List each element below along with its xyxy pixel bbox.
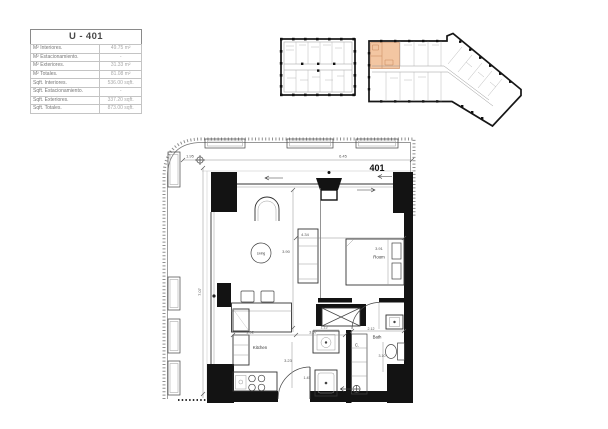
kitchen-sink [236, 376, 247, 390]
table-row: M² Totales.81.08 m² [31, 70, 142, 79]
living-label: Living [257, 252, 266, 256]
row-value: 337.20 sqft. [100, 96, 142, 105]
wall-segment [217, 283, 231, 307]
closet-label: C. [355, 343, 359, 348]
dim-top-overall: 6.45 [339, 154, 348, 159]
column [211, 172, 237, 212]
key-plan-tower-b [368, 34, 521, 127]
row-label: M² Estacionamiento. [31, 53, 100, 62]
dim-shower-width: 1.45 [304, 376, 311, 380]
armchair [255, 197, 279, 221]
stove [249, 375, 265, 391]
row-label: M² Totales. [31, 70, 100, 79]
dim-bath-width: 2.12 [368, 327, 375, 331]
bath-sink [386, 315, 403, 329]
row-value: 49.75 m² [100, 45, 142, 54]
row-label: Sqft. Totales. [31, 105, 100, 114]
plan-sheet: U - 401 M² Interiores.49.75 m² M² Estaci… [0, 0, 608, 429]
table-row: Sqft. Interiores.536.00 sqft. [31, 79, 142, 88]
key-plan-tower-a [280, 38, 356, 96]
kitchen-label: Kitchen [253, 345, 268, 350]
table-row: Sqft. Estacionamiento.- [31, 87, 142, 96]
dim-room-width: 3.91 [375, 246, 384, 251]
row-value: - [100, 53, 142, 62]
row-label: Sqft. Estacionamiento. [31, 87, 100, 96]
row-value: - [100, 87, 142, 96]
dim-kitchen-width: 1.92 [246, 330, 255, 335]
row-value: 873.00 sqft. [100, 105, 142, 114]
floor-plan-unit-401: Living [164, 139, 414, 403]
wall-node [212, 294, 215, 297]
row-value: 31.33 m² [100, 62, 142, 71]
dim-living-depth: 3.90 [282, 249, 291, 254]
column [387, 364, 413, 403]
unit-number: 401 [369, 163, 384, 173]
table-row: Sqft. Exteriores.337.20 sqft. [31, 96, 142, 105]
row-label: Sqft. Interiores. [31, 79, 100, 88]
table-row: M² Interiores.49.75 m² [31, 45, 142, 54]
row-label: M² Exteriores. [31, 62, 100, 71]
bedroom-wall [379, 298, 404, 303]
table-row: M² Estacionamiento.- [31, 53, 142, 62]
kitchen-cabinet [233, 335, 249, 365]
kitchen-island [232, 291, 292, 332]
toilet-icon [386, 343, 405, 360]
fridge [233, 309, 249, 331]
unit-areas-table: M² Interiores.49.75 m² M² Estacionamient… [30, 44, 142, 114]
bath-label: Bath [373, 335, 382, 340]
chair [241, 291, 254, 302]
bottom-wall [234, 391, 278, 402]
unit-info-table: U - 401 M² Interiores.49.75 m² M² Estaci… [30, 29, 142, 114]
living-label-circle: Living [251, 243, 271, 263]
balcony-planters [168, 139, 398, 395]
table-row: M² Exteriores.31.33 m² [31, 62, 142, 71]
row-value: 536.00 sqft. [100, 79, 142, 88]
dim-node [195, 155, 205, 165]
dim-kitchen-depth: 3.23 [284, 358, 293, 363]
column [393, 172, 413, 213]
facade-unit [316, 171, 342, 200]
dim-balcony-width: 1.95 [186, 154, 195, 159]
dim-hall-width: 3.07 [309, 330, 318, 335]
unit-title: U - 401 [30, 29, 142, 44]
column [207, 364, 234, 403]
row-label: Sqft. Exteriores. [31, 96, 100, 105]
shaft [322, 308, 360, 326]
dim-entry-width: 1.13 [321, 326, 328, 330]
wardrobe [298, 229, 318, 283]
chair [261, 291, 274, 302]
row-label: M² Interiores. [31, 45, 100, 54]
bedroom-wall [318, 298, 352, 303]
table-row: Sqft. Totales.873.00 sqft. [31, 105, 142, 114]
dim-bath-depth: 3.10 [379, 354, 386, 358]
dim-living-width: 4.34 [301, 232, 310, 237]
dim-left-overall: 7.07 [197, 287, 202, 296]
room-label: Room [373, 255, 385, 260]
entry-door [278, 367, 310, 399]
closet [352, 334, 368, 394]
kitchen-counter [233, 372, 277, 391]
hall-wall [346, 330, 352, 403]
shaft-wall [316, 304, 366, 308]
row-value: 81.08 m² [100, 70, 142, 79]
